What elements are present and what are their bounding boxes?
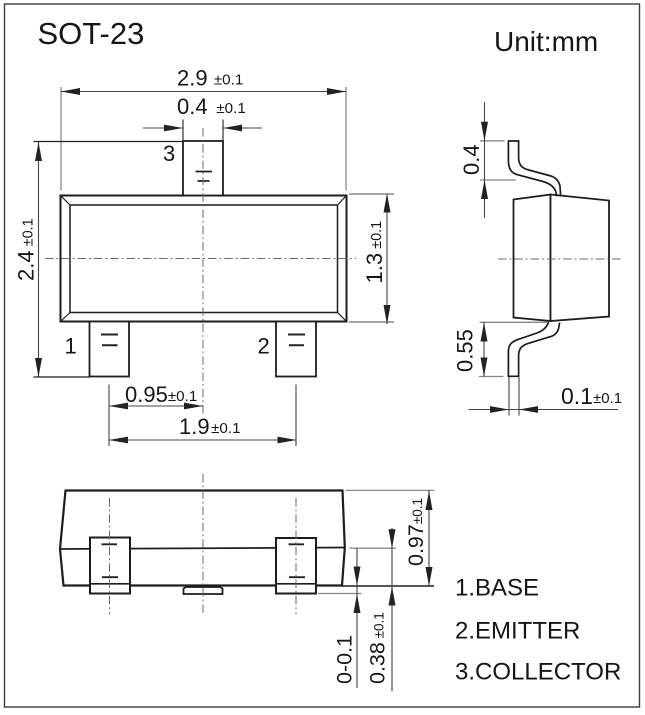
svg-text:3.COLLECTOR: 3.COLLECTOR bbox=[455, 659, 621, 686]
svg-text:SOT-23: SOT-23 bbox=[38, 16, 145, 51]
svg-text:Unit:mm: Unit:mm bbox=[494, 26, 598, 57]
svg-text:2: 2 bbox=[258, 334, 270, 359]
svg-text:0.4: 0.4 bbox=[459, 144, 484, 175]
svg-text:0.55: 0.55 bbox=[453, 329, 478, 372]
svg-text:2.EMITTER: 2.EMITTER bbox=[455, 618, 580, 645]
svg-text:1: 1 bbox=[65, 334, 77, 359]
svg-text:3: 3 bbox=[163, 141, 175, 166]
svg-text:0-0.1: 0-0.1 bbox=[333, 635, 357, 684]
svg-text:1.BASE: 1.BASE bbox=[455, 575, 539, 602]
